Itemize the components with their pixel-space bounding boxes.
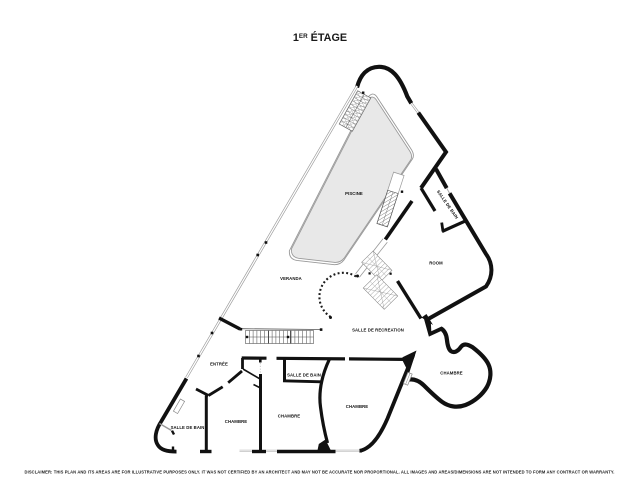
svg-text:ENTRÉE: ENTRÉE xyxy=(210,362,228,367)
svg-text:CHAMBRE: CHAMBRE xyxy=(225,419,247,424)
svg-text:CHAMBRE: CHAMBRE xyxy=(346,404,368,409)
svg-text:SALLE DE BAIN: SALLE DE BAIN xyxy=(287,373,321,378)
svg-text:PISCINE: PISCINE xyxy=(345,191,363,196)
svg-text:SALLE DE RECREATION: SALLE DE RECREATION xyxy=(352,328,404,333)
svg-text:VERANDA: VERANDA xyxy=(280,276,302,281)
svg-text:CHAMBRE: CHAMBRE xyxy=(440,371,462,376)
svg-text:ROOM: ROOM xyxy=(429,261,443,266)
svg-text:CHAMBRE: CHAMBRE xyxy=(278,414,300,419)
svg-text:DISCLAIMER: THIS PLAN AND ITS: DISCLAIMER: THIS PLAN AND ITS AREAS ARE … xyxy=(25,470,615,475)
svg-text:SALLE DE BAIN: SALLE DE BAIN xyxy=(171,425,205,430)
